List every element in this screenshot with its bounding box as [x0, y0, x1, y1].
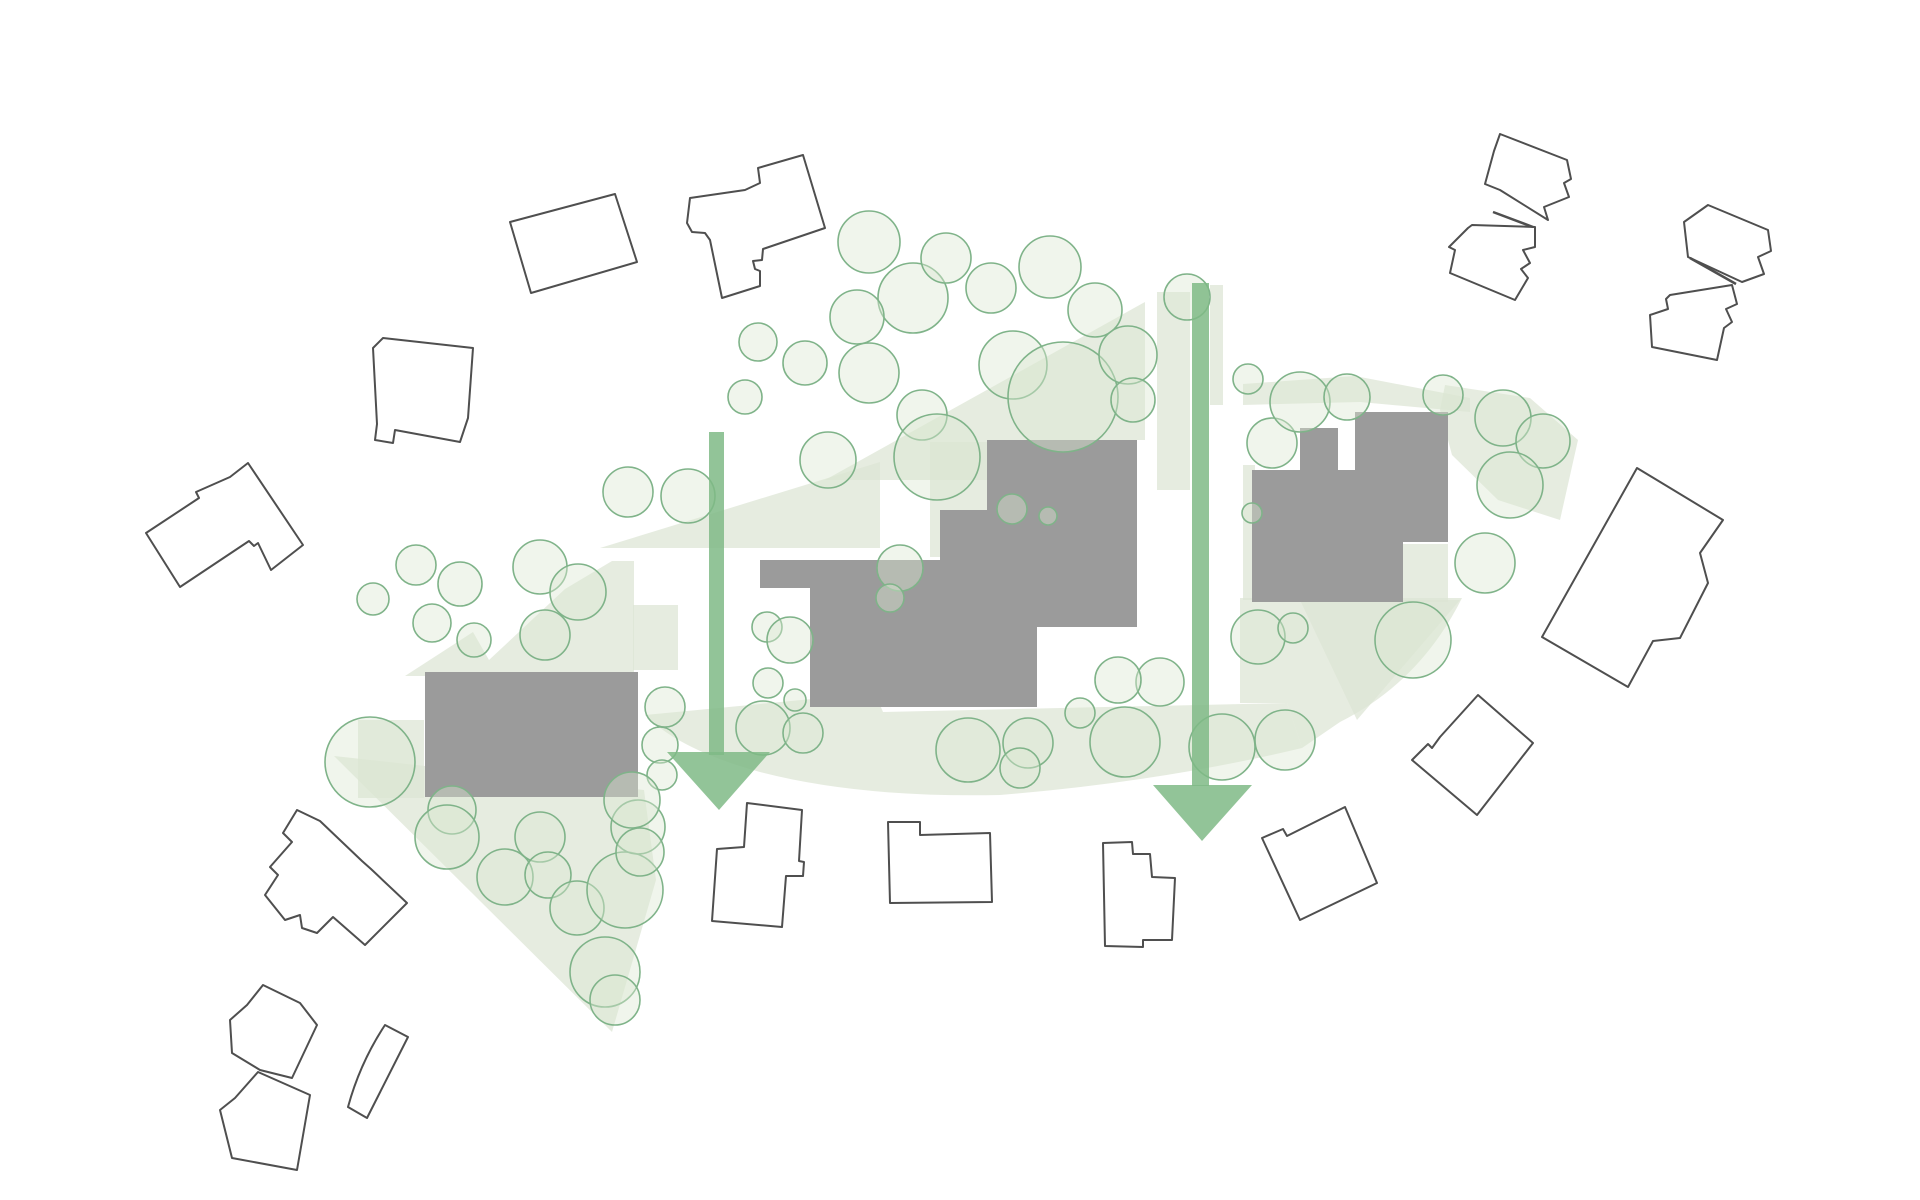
tree-circle-36: [1111, 378, 1155, 422]
tree-circle-39: [1242, 503, 1262, 523]
tree-circle-51: [1455, 533, 1515, 593]
context-se-quad: [1262, 807, 1377, 920]
context-east-large: [1542, 468, 1723, 687]
tree-circle-19: [838, 211, 900, 273]
site-plan-svg: [0, 0, 1920, 1200]
tree-circle-41: [1039, 507, 1057, 525]
tree-circle-15: [753, 668, 783, 698]
tree-circle-0: [396, 545, 436, 585]
tree-circle-46: [1324, 374, 1370, 420]
flow-arrow-east-shaft: [1192, 283, 1209, 786]
tree-circle-17: [736, 701, 790, 755]
massing-west: [425, 672, 638, 797]
context-ne-pair1-upper: [1485, 134, 1571, 220]
tree-circle-18: [783, 713, 823, 753]
tree-circle-9: [661, 469, 715, 523]
tree-circle-2: [413, 604, 451, 642]
tree-circle-50: [1477, 452, 1543, 518]
tree-circle-54: [1278, 613, 1308, 643]
tree-circle-43: [876, 584, 904, 612]
tree-circle-55: [1255, 710, 1315, 770]
tree-circle-56: [936, 718, 1000, 782]
tree-circle-10: [645, 687, 685, 727]
flow-arrow-west-shaft: [709, 432, 724, 755]
tree-circle-47: [1423, 375, 1463, 415]
tree-circle-45: [1270, 372, 1330, 432]
tree-circle-52: [1375, 602, 1451, 678]
tree-circle-62: [1095, 657, 1141, 703]
context-north-notched: [687, 155, 825, 298]
landscape-north-strip: [1210, 285, 1223, 405]
tree-circle-59: [1090, 707, 1160, 777]
tree-circle-4: [357, 583, 389, 615]
party-wall-link-ne1: [1493, 212, 1533, 227]
context-south-notched: [712, 803, 804, 927]
tree-circle-27: [800, 432, 856, 488]
tree-circle-14: [767, 617, 813, 663]
tree-circle-23: [783, 341, 827, 385]
landscape-east-notch-square: [1403, 544, 1448, 602]
context-ne-pair2-upper: [1684, 205, 1771, 282]
tree-circle-61: [1136, 658, 1184, 706]
tree-circle-63: [1065, 698, 1095, 728]
tree-circle-35: [1099, 326, 1157, 384]
context-sw-stepped: [265, 810, 407, 945]
tree-circle-22: [830, 290, 884, 344]
context-sw-house-a: [230, 985, 317, 1078]
tree-circle-53: [1231, 610, 1285, 664]
tree-circle-38: [1233, 364, 1263, 394]
context-south-rect: [888, 822, 992, 903]
tree-circle-26: [739, 323, 777, 361]
tree-circle-40: [997, 494, 1027, 524]
context-ne-pair1-lower: [1449, 225, 1535, 300]
flow-arrow-east-head: [1153, 785, 1252, 841]
tree-circle-29: [894, 414, 980, 500]
context-south-stepped: [1103, 842, 1175, 947]
tree-circle-24: [839, 343, 899, 403]
context-ne-pair2-lower: [1650, 285, 1737, 360]
tree-circle-7: [520, 610, 570, 660]
tree-circle-66: [415, 805, 479, 869]
tree-circle-8: [603, 467, 653, 517]
tree-circle-16: [784, 689, 806, 711]
context-nw-rect: [510, 194, 637, 293]
tree-circle-75: [604, 772, 660, 828]
landscape-ridge-foot: [633, 605, 678, 670]
tree-circle-6: [550, 564, 606, 620]
tree-circle-74: [590, 975, 640, 1025]
context-sw-sliver: [348, 1025, 408, 1118]
site-plan-canvas: [0, 0, 1920, 1200]
tree-circle-58: [1000, 748, 1040, 788]
tree-circle-3: [457, 623, 491, 657]
tree-circle-64: [325, 717, 415, 807]
tree-circle-1: [438, 562, 482, 606]
tree-circle-42: [877, 545, 923, 591]
flow-arrow-west-head: [667, 752, 770, 810]
context-sw-house-b: [220, 1072, 310, 1170]
tree-circle-76: [616, 828, 664, 876]
tree-circle-30: [1019, 236, 1081, 298]
tree-circle-21: [921, 233, 971, 283]
tree-circle-25: [728, 380, 762, 414]
context-west-quad: [373, 338, 473, 443]
context-west-lshape: [146, 463, 303, 587]
tree-circle-31: [966, 263, 1016, 313]
context-se-diamond: [1412, 695, 1533, 815]
landscape-north-column: [1157, 292, 1190, 490]
